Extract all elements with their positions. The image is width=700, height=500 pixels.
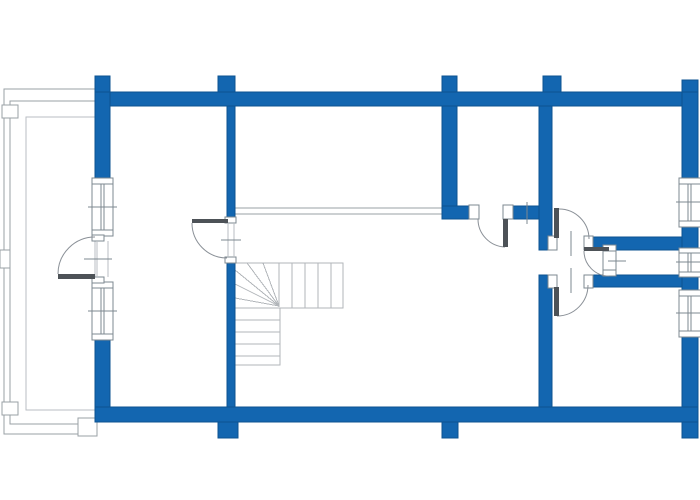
window-right-3-cap-top: [679, 290, 700, 296]
door-exterior-cap-top: [92, 235, 104, 241]
wall-stair-upper: [227, 106, 235, 217]
wall-bottom: [95, 407, 698, 422]
wall-top: [95, 92, 698, 106]
wall-mid-vert-upper: [539, 106, 552, 250]
wall-right-seg2: [682, 227, 698, 248]
door-lowerright-post-left: [548, 275, 557, 288]
stub-top-stairwall: [218, 76, 235, 92]
door-lowerright-swing-arc: [557, 285, 588, 316]
door-upperright-post-left: [548, 236, 557, 250]
door-topmiddle-post-left: [469, 205, 479, 219]
porch-outer-contour: [4, 89, 95, 434]
porch-inner-contour: [26, 117, 95, 410]
stair-railing: [235, 208, 442, 214]
window-right-2-cap-bottom: [679, 272, 700, 277]
stub-top-left-corner: [95, 76, 110, 92]
porch-mid-contour: [10, 101, 95, 424]
door-corridor-end-leaf: [584, 247, 609, 251]
door-lowerright-leaf: [554, 287, 559, 316]
door-topmiddle-leaf: [503, 219, 508, 247]
wall-corridor-lower: [593, 275, 682, 287]
window-right-2-cap-top: [679, 248, 700, 253]
stub-top-midwall: [442, 76, 457, 92]
door-exterior-leaf: [58, 274, 95, 279]
porch-post-bottom-left: [2, 402, 18, 415]
porch-post-top-left: [2, 105, 18, 118]
door-upperright-swing-arc: [559, 209, 589, 239]
wall-right-seg4: [682, 337, 698, 407]
window-right-1-cap-bottom: [679, 221, 700, 227]
door-topmiddle-swing-arc: [478, 219, 505, 247]
window-left-1-cap-top: [92, 178, 113, 184]
door-lowerright-post-right: [584, 275, 593, 288]
wall-right-seg3: [682, 277, 698, 290]
wall-right-seg1: [682, 92, 698, 178]
door-stair-leaf: [192, 219, 228, 223]
wall-topmiddle-vert: [442, 106, 457, 219]
stub-bottom-stairwall: [218, 422, 238, 438]
stub-top-right-corner: [682, 80, 698, 92]
stub-bottom-midwall: [442, 422, 458, 438]
stub-top-rightwall: [543, 76, 561, 92]
staircase: [235, 263, 343, 365]
door-topmiddle-post-right: [503, 205, 513, 219]
door-exterior-swing-arc: [58, 237, 95, 274]
wall-left-lower: [95, 340, 110, 407]
floor-plan-canvas: [0, 0, 700, 500]
door-upperright-leaf: [554, 208, 559, 238]
window-right-1-cap-top: [679, 178, 700, 184]
floor-plan-svg: [0, 0, 700, 500]
window-left-2-cap-bottom: [92, 334, 113, 340]
window-right-3-cap-bottom: [679, 331, 700, 337]
wall-mid-vert-lower: [539, 275, 552, 407]
wall-topmiddle-horiz-west: [442, 206, 469, 219]
wall-stair-lower: [227, 263, 235, 407]
stub-bottom-right-corner: [682, 422, 698, 438]
porch-post-mid-left: [0, 250, 10, 268]
porch-post-bottom-right: [78, 418, 97, 436]
wall-left-upper: [95, 92, 110, 178]
porch: [0, 89, 97, 436]
